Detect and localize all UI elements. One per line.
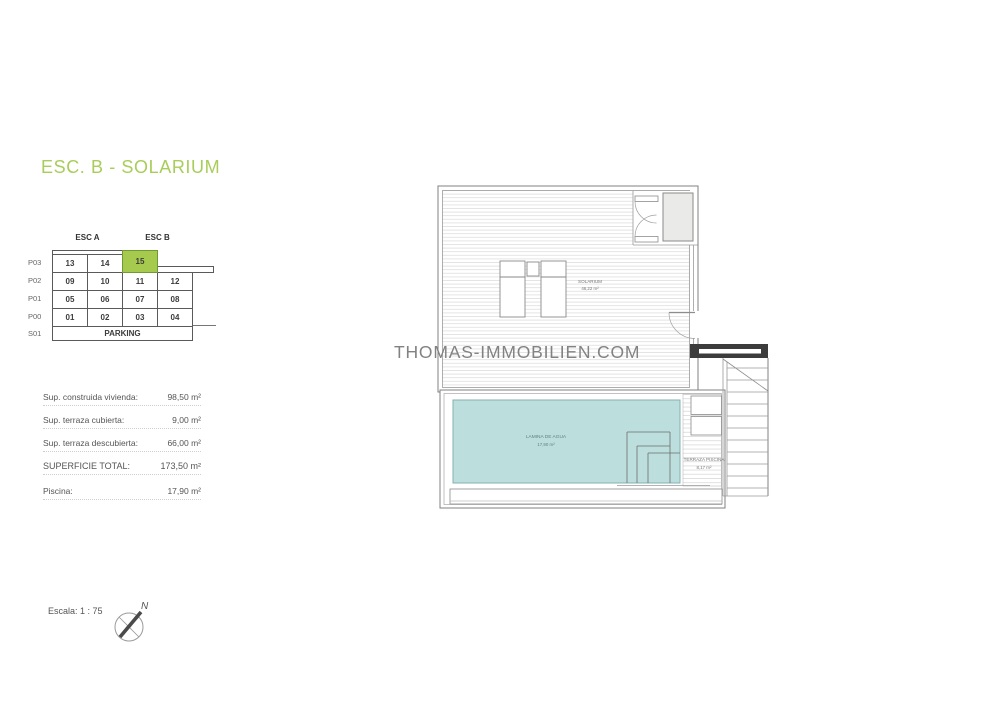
pool-area-label: 17,90 m²: [537, 442, 555, 447]
terrace-label: TERRAZA PISCINA: [684, 457, 726, 462]
solarium-area-label: 46,22 m²: [581, 286, 599, 291]
wall-section-bar: [690, 344, 768, 358]
unit-cell[interactable]: 01: [52, 308, 88, 327]
page-title: ESC. B - SOLARIUM: [41, 157, 220, 178]
area-value: 9,00 m²: [172, 415, 201, 425]
area-value: 98,50 m²: [167, 392, 201, 402]
area-value: 173,50 m²: [160, 461, 201, 471]
unit-cell[interactable]: 04: [157, 308, 193, 327]
esc-b-header: ESC B: [122, 233, 193, 242]
terrace-edge-strip: [450, 489, 722, 504]
staircase: [723, 358, 768, 496]
pool-label: LAMINA DE AGUA: [526, 434, 567, 440]
area-label: SUPERFICIE TOTAL:: [43, 461, 130, 471]
unit-cell[interactable]: 03: [122, 308, 158, 327]
unit-cell[interactable]: 02: [87, 308, 123, 327]
area-label: Sup. terraza descubierta:: [43, 438, 138, 448]
unit-cell[interactable]: 08: [157, 290, 193, 309]
unit-cell[interactable]: 10: [87, 272, 123, 291]
unit-cell[interactable]: 09: [52, 272, 88, 291]
unit-cell[interactable]: 06: [87, 290, 123, 309]
area-row: Sup. terraza cubierta: 9,00 m²: [43, 413, 201, 429]
row-label-s01: S01: [28, 329, 48, 338]
area-row-total: SUPERFICIE TOTAL: 173,50 m²: [43, 459, 201, 475]
scale-label: Escala: 1 : 75: [48, 606, 103, 616]
row-label-p02: P02: [28, 276, 48, 285]
area-value: 66,00 m²: [167, 438, 201, 448]
ground-line: [192, 325, 216, 326]
area-label: Sup. construida vivienda:: [43, 392, 138, 402]
area-row-pool: Piscina: 17,90 m²: [43, 484, 201, 500]
parking-cell[interactable]: PARKING: [52, 326, 193, 341]
surface-areas: Sup. construida vivienda: 98,50 m² Sup. …: [43, 390, 201, 507]
unit-cell[interactable]: 12: [157, 272, 193, 291]
area-row: Sup. terraza descubierta: 66,00 m²: [43, 436, 201, 452]
pool-shape: [453, 400, 710, 486]
area-value: 17,90 m²: [167, 486, 201, 496]
watermark: THOMAS-IMMOBILIEN.COM: [394, 342, 640, 363]
row-label-p00: P00: [28, 312, 48, 321]
compass-icon: N: [110, 597, 152, 645]
unit-cell[interactable]: 14: [87, 254, 123, 273]
unit-cell[interactable]: 05: [52, 290, 88, 309]
north-label: N: [141, 601, 149, 612]
unit-cell-highlighted[interactable]: 15: [122, 250, 158, 273]
esc-a-header: ESC A: [52, 233, 123, 242]
unit-cell[interactable]: 07: [122, 290, 158, 309]
unit-cell[interactable]: 13: [52, 254, 88, 273]
solarium-label: SOLARIUM: [578, 279, 602, 284]
terrace-area-label: 8,17 m²: [697, 465, 712, 470]
area-label: Sup. terraza cubierta:: [43, 415, 124, 425]
area-label: Piscina:: [43, 486, 73, 496]
unit-cell[interactable]: 11: [122, 272, 158, 291]
row-label-p03: P03: [28, 258, 48, 267]
area-row: Sup. construida vivienda: 98,50 m²: [43, 390, 201, 406]
row-label-p01: P01: [28, 294, 48, 303]
plan-sheet: ESC. B - SOLARIUM ESC A ESC B P03 P02 P0…: [0, 0, 1000, 706]
